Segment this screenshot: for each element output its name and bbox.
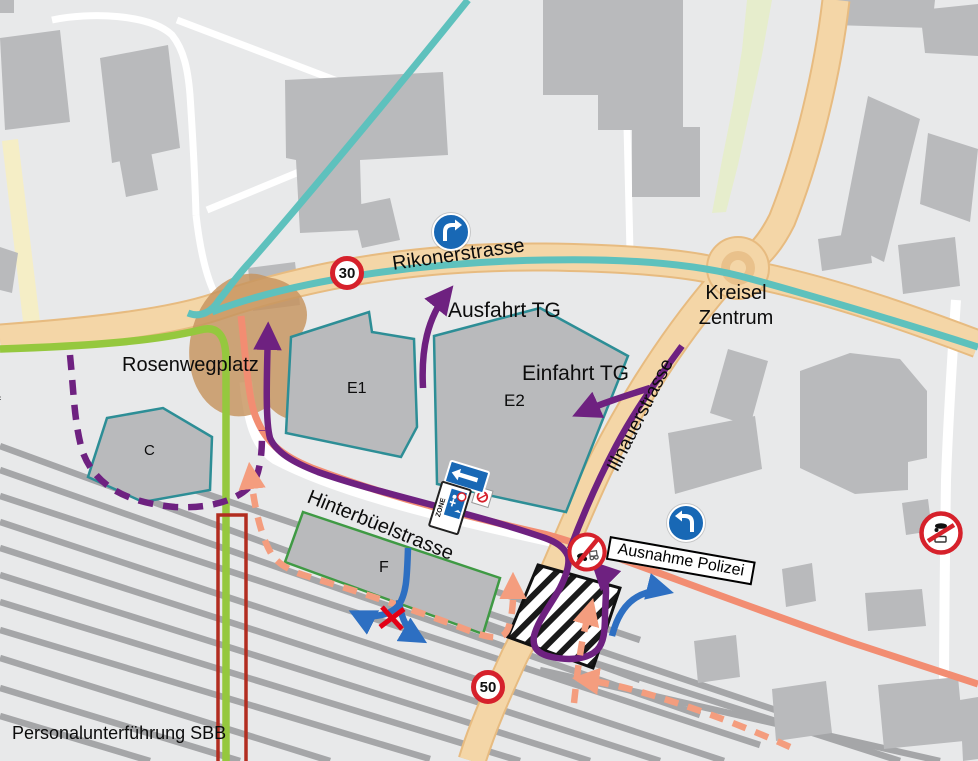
- traffic-plan-map: ZONE Rikonerstrasse Ausfahrt TG Einfahrt…: [0, 0, 978, 761]
- label-kreisel-line1: Kreisel: [694, 281, 778, 306]
- label-personalunterfuehrung-sbb: Personalunterführung SBB: [12, 724, 226, 743]
- speed-limit-30-value: 30: [339, 265, 356, 282]
- speed-limit-50-value: 50: [480, 679, 497, 696]
- building-label-e1: E1: [347, 381, 367, 398]
- building-label-f: F: [379, 560, 389, 577]
- cutoff-label-fragment: f: [0, 395, 1, 409]
- building-label-c: C: [144, 443, 155, 459]
- speed-limit-30-sign: 30: [330, 256, 364, 290]
- mandatory-right-turn-sign: [432, 213, 470, 251]
- speed-limit-50-sign: 50: [471, 670, 505, 704]
- label-einfahrt-tg: Einfahrt TG: [522, 363, 629, 385]
- no-motor-vehicles-sign: [922, 514, 961, 553]
- label-ausfahrt-tg: Ausfahrt TG: [448, 300, 561, 322]
- right-turn-arrow-icon: [434, 215, 468, 249]
- label-kreisel-line2: Zentrum: [694, 306, 778, 331]
- building-label-e2: E2: [504, 392, 525, 410]
- label-kreisel-zentrum: Kreisel Zentrum: [694, 281, 778, 331]
- label-rosenwegplatz: Rosenwegplatz: [122, 355, 259, 376]
- left-turn-arrow-icon: [669, 506, 703, 540]
- map-canvas: ZONE: [0, 0, 978, 761]
- mandatory-left-turn-sign: [667, 504, 705, 542]
